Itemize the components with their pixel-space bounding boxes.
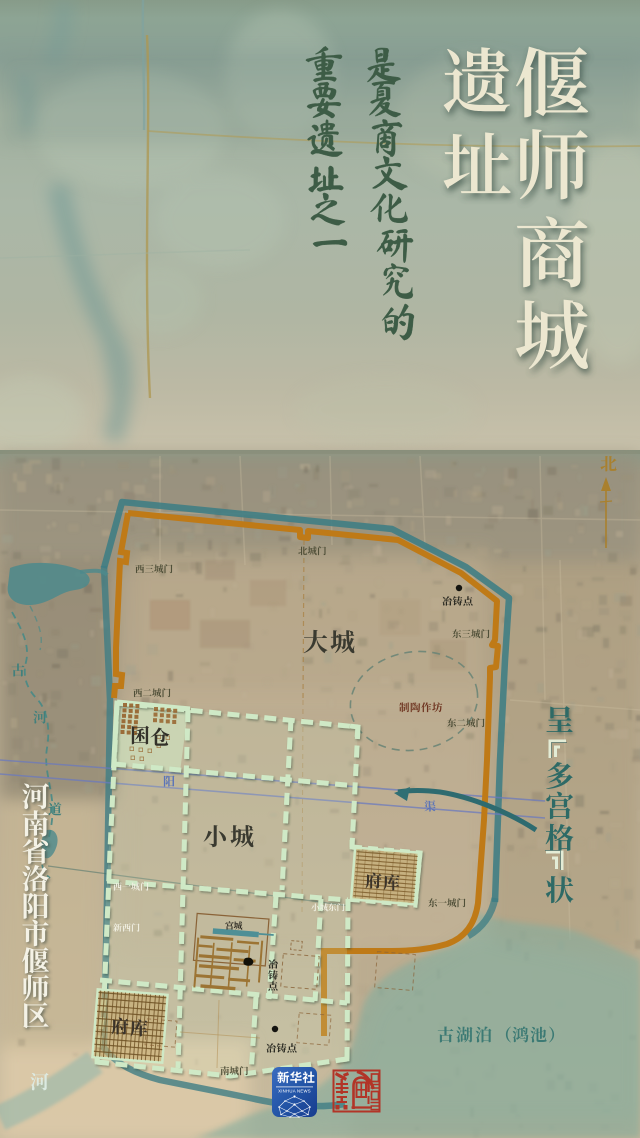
svg-text:XINHUA NEWS: XINHUA NEWS [278, 1089, 311, 1094]
